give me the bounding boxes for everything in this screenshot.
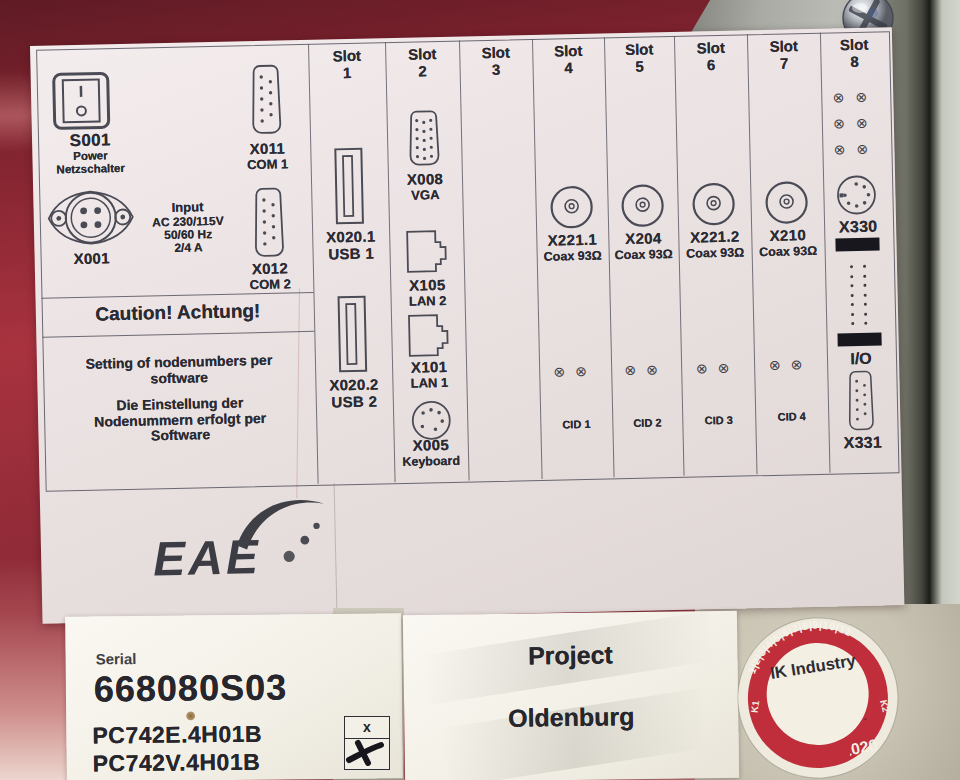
screw-terminals: ⊗⊗ <box>681 360 754 376</box>
connector-sub: COM 1 <box>232 157 304 173</box>
slot-header-4: Slot4 <box>532 41 605 77</box>
screw-terminals: ⊗⊗ <box>754 357 827 373</box>
usb-port-icon <box>337 295 369 374</box>
power-switch-icon <box>51 70 112 131</box>
usb-port-icon <box>333 147 365 226</box>
serial-label: Serial <box>95 650 136 667</box>
connector-sub: Keyboard <box>394 453 468 469</box>
db9-io-icon <box>843 370 878 433</box>
connector-id: X008 <box>388 171 462 189</box>
terminal-block-bar <box>837 332 881 346</box>
project-label: Project <box>403 639 737 673</box>
din-connector-icon <box>835 174 878 217</box>
x012-labels: X012 COM 2 <box>234 260 307 293</box>
x008-labels: X008 VGA <box>388 171 463 204</box>
serial-number: 668080S03 <box>94 666 288 710</box>
connector-sub: VGA <box>388 187 462 203</box>
model-number: PC742V.4H01B <box>93 749 261 778</box>
slot-header-3: Slot3 <box>459 43 533 79</box>
connector-id: X011 <box>231 140 303 158</box>
connector-sub: Coax 93Ω <box>609 247 679 263</box>
connector-sub: LAN 1 <box>392 375 466 391</box>
inspection-checkbox: x <box>344 716 390 770</box>
slot-header-1: Slot1 <box>308 46 386 82</box>
x221-2-labels: X221.2 Coax 93Ω <box>678 228 752 260</box>
x204-labels: X204 Coax 93Ω <box>608 230 679 262</box>
vga-port-icon <box>405 109 442 168</box>
cid-label: CID 3 <box>682 413 755 427</box>
project-name: Oldenburg <box>404 701 738 735</box>
slot-header-7: Slot7 <box>747 37 821 73</box>
screw-terminals: ⊗⊗ <box>539 363 611 379</box>
connector-id: X020.2 <box>315 376 392 394</box>
coax-connector-icon <box>619 182 666 229</box>
cid-label: CID 2 <box>612 416 682 430</box>
cid-label: CID 4 <box>755 410 828 424</box>
screw-terminals: ⊗⊗ <box>822 115 890 130</box>
cid-label: CID 1 <box>540 417 612 431</box>
badge-left-mark: K1 <box>749 699 761 713</box>
x020-2-labels: X020.2 USB 2 <box>315 376 393 411</box>
coax-connector-icon <box>763 179 810 226</box>
connector-sub: USB 1 <box>312 245 389 263</box>
connector-id: S001 <box>40 130 140 151</box>
io-pin-dots <box>845 262 872 329</box>
connector-id: X020.1 <box>312 228 389 246</box>
screw-terminals: ⊗⊗ <box>821 89 889 104</box>
slot-header-5: Slot5 <box>604 40 675 76</box>
note-english: Setting of nodenumbers per software <box>43 352 316 389</box>
project-sticker: Project Oldenburg <box>403 611 739 780</box>
connector-sub: Netzschalter <box>41 162 141 177</box>
slot-header-6: Slot6 <box>674 38 748 74</box>
connector-sub: Coax 93Ω <box>679 245 752 261</box>
connector-id: X210 <box>751 227 824 245</box>
io-label: I/O <box>827 349 895 368</box>
connector-sub: Coax 93Ω <box>537 248 609 264</box>
input-line: 2/4 A <box>138 241 238 257</box>
db9-com1-icon <box>248 62 284 137</box>
connector-id: X005 <box>394 437 468 455</box>
connector-sub: COM 2 <box>234 277 306 293</box>
connector-id: X105 <box>390 277 464 295</box>
checkbox-mark-printed: x <box>345 717 389 739</box>
connector-id: X331 <box>829 433 897 452</box>
x101-labels: X101 LAN 1 <box>392 359 467 392</box>
slot-header-2: Slot2 <box>385 45 460 81</box>
coax-connector-icon <box>690 181 737 228</box>
eae-logo: EAE <box>152 491 344 591</box>
eae-logo-swoosh <box>230 491 344 589</box>
connector-id: X221.1 <box>536 231 608 249</box>
handwritten-x-mark <box>345 739 386 766</box>
connector-panel-label: S001 Power Netzschalter X011 COM 1 X001 … <box>30 27 904 624</box>
power-inlet-icon <box>45 186 136 250</box>
screw-terminals: ⊗⊗ <box>611 362 681 378</box>
ethernet-port-icon <box>407 313 450 358</box>
terminal-block-bar <box>835 238 879 252</box>
label-speck <box>186 711 195 720</box>
note-german: Die Einstellung der Nodenummern erfolgt … <box>44 394 317 447</box>
s001-labels: S001 Power Netzschalter <box>40 130 141 177</box>
connector-id: X204 <box>608 230 678 248</box>
x221-1-labels: X221.1 Coax 93Ω <box>536 231 609 263</box>
x210-labels: X210 Coax 93Ω <box>751 227 825 259</box>
inspection-badge: 1|2|3|4|5|6|7|8|9|10|11 K1 K2 IK Industr… <box>728 610 909 780</box>
slot-header-8: Slot8 <box>820 35 889 70</box>
x020-1-labels: X020.1 USB 1 <box>312 228 390 263</box>
db9-com2-icon <box>251 186 287 259</box>
inspection-badge-seal: 1|2|3|4|5|6|7|8|9|10|11 K1 K2 IK Industr… <box>728 610 909 780</box>
screw-terminals: ⊗⊗ <box>822 141 890 156</box>
connector-sub: USB 2 <box>316 393 393 411</box>
ethernet-port-icon <box>405 229 448 274</box>
x105-labels: X105 LAN 2 <box>390 277 465 310</box>
connector-id: X221.2 <box>678 228 751 246</box>
connector-id: X001 <box>46 250 136 269</box>
connector-id: X012 <box>234 260 306 278</box>
model-number: PC742E.4H01B <box>92 721 262 750</box>
x005-labels: X005 Keyboard <box>394 437 469 469</box>
photo-canvas: S001 Power Netzschalter X011 COM 1 X001 … <box>0 0 960 780</box>
x011-labels: X011 COM 1 <box>231 140 304 173</box>
connector-id: X101 <box>392 359 466 377</box>
connector-sub: Coax 93Ω <box>752 244 825 260</box>
connector-id: X330 <box>824 217 892 236</box>
connector-sub: LAN 2 <box>391 293 465 309</box>
coax-connector-icon <box>548 184 595 231</box>
power-input-spec: Input AC 230/115V 50/60 Hz 2/4 A <box>137 200 238 257</box>
